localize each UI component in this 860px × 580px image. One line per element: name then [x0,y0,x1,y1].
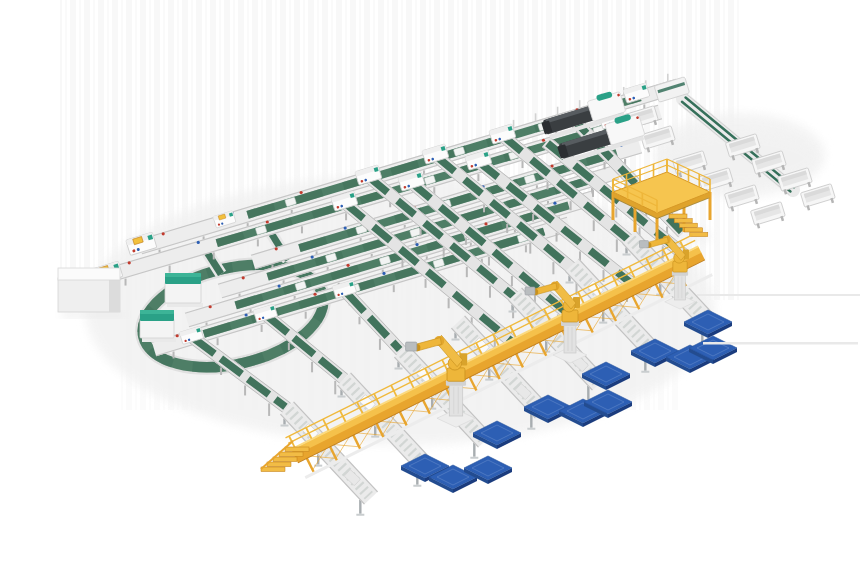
render-stage [0,0,860,580]
robot-pedestal [675,275,686,300]
status-dot [300,191,303,194]
lane-leg [379,339,381,350]
lane-leg [547,182,549,190]
status-dot [197,241,200,244]
stair-step [261,467,285,472]
robot-gripper [525,287,535,295]
roller-foot [470,457,478,459]
stair-step [285,447,309,452]
status-dot [275,247,278,250]
lane-leg [570,201,572,210]
conveyor-leg [305,312,307,319]
roller-leg [359,500,361,514]
cabinet-top [58,268,120,280]
station-body [140,319,174,338]
cabinet-side [109,278,120,312]
lane-leg [506,224,508,233]
lane-leg [358,317,360,325]
lane-leg [488,257,490,266]
roller-foot [428,408,436,410]
roller-foot [527,428,535,430]
lane-leg [593,220,595,231]
status-dot [553,202,556,205]
robot-pedestal [449,385,462,416]
conveyor-leg [301,226,303,233]
roller-foot [509,311,517,313]
status-dot [382,272,385,275]
status-dot [162,232,165,235]
station-top-bevel [140,310,174,314]
lane-leg [420,229,422,237]
status-dot [266,220,269,223]
conveyor-leg [125,279,127,286]
status-dot [313,293,316,296]
lane-leg [615,208,617,217]
roller-leg [530,414,532,428]
railing-post [656,200,658,213]
station-shadow [142,338,176,342]
roller-foot [338,396,346,398]
lane-leg [466,267,468,277]
railing-post [557,107,559,115]
lane-leg [556,233,558,242]
lane-leg [604,162,606,170]
lane-leg [288,343,290,351]
railing-post [667,74,669,82]
stair-step [669,214,687,218]
lane-leg [268,403,270,416]
conveyor-leg [261,325,263,332]
lane-leg [425,279,427,288]
lane-leg [483,205,485,213]
lane-leg [465,237,467,245]
roller-foot [452,339,460,341]
roller-leg [473,443,475,457]
status-dot [550,164,553,167]
stair-step [267,462,291,467]
station-top-bevel [165,273,201,277]
lane-leg [592,189,594,197]
stair-step [273,457,297,462]
stair-step [279,452,303,457]
teal-station [140,310,176,342]
stair-step [685,228,703,232]
status-dot [209,305,212,308]
roller-foot [371,436,379,438]
robot-gripper [640,241,649,248]
roller-foot [623,254,631,256]
factory-3d-render [0,0,860,580]
conveyor-leg [173,351,175,358]
teal-station [165,273,203,307]
roller-foot [356,514,364,516]
status-dot [346,264,349,267]
roller-foot [485,379,493,381]
status-dot [344,227,347,230]
roller-foot [281,425,289,427]
conveyor-leg [477,174,479,181]
lane-leg [244,385,246,395]
stair-step [690,232,708,236]
status-dot [245,313,248,316]
conveyor-leg [169,266,171,273]
lane-leg [401,260,403,268]
station-body [165,282,201,303]
lane-leg [529,243,531,254]
status-dot [242,276,245,279]
status-dot [311,256,314,259]
conveyor-leg [345,213,347,220]
status-dot [484,222,487,225]
floor-line [697,294,860,296]
roller-foot [566,282,574,284]
lane-leg [511,276,513,286]
lane-leg [616,239,618,251]
roller-foot [413,485,421,487]
lane-leg [489,286,491,298]
status-dot [542,139,545,142]
railing-post [579,100,581,108]
status-dot [415,243,418,246]
status-dot [176,334,179,337]
conveyor-leg [525,245,527,252]
control-cabinet [58,268,124,317]
stair-step [674,219,692,223]
stair-step [679,223,697,227]
railing-post [709,179,711,192]
lane-leg [448,298,450,308]
roller-leg [587,386,589,400]
lane-leg [220,367,222,375]
lane-leg [443,248,445,257]
conveyor-leg [522,161,524,168]
trough-bin [800,184,836,212]
robot-gripper [406,342,417,351]
lane-leg [311,362,313,372]
railing-post [535,113,537,121]
roller-foot [641,371,649,373]
trough-bin [750,202,786,230]
status-dot [278,284,281,287]
lane-leg [532,214,534,222]
lane-leg [334,381,336,394]
roller-foot [599,322,607,324]
conveyor-leg [217,338,219,345]
conveyor-leg [257,239,259,246]
lane-leg [552,262,554,274]
status-dot [128,261,131,264]
cabinet-shadow [62,312,124,317]
roller-foot [395,368,403,370]
conveyor-leg [213,252,215,259]
station-shadow [167,303,203,307]
floor-line [703,342,858,345]
robot-pedestal [564,325,576,353]
conveyor-leg [393,285,395,292]
